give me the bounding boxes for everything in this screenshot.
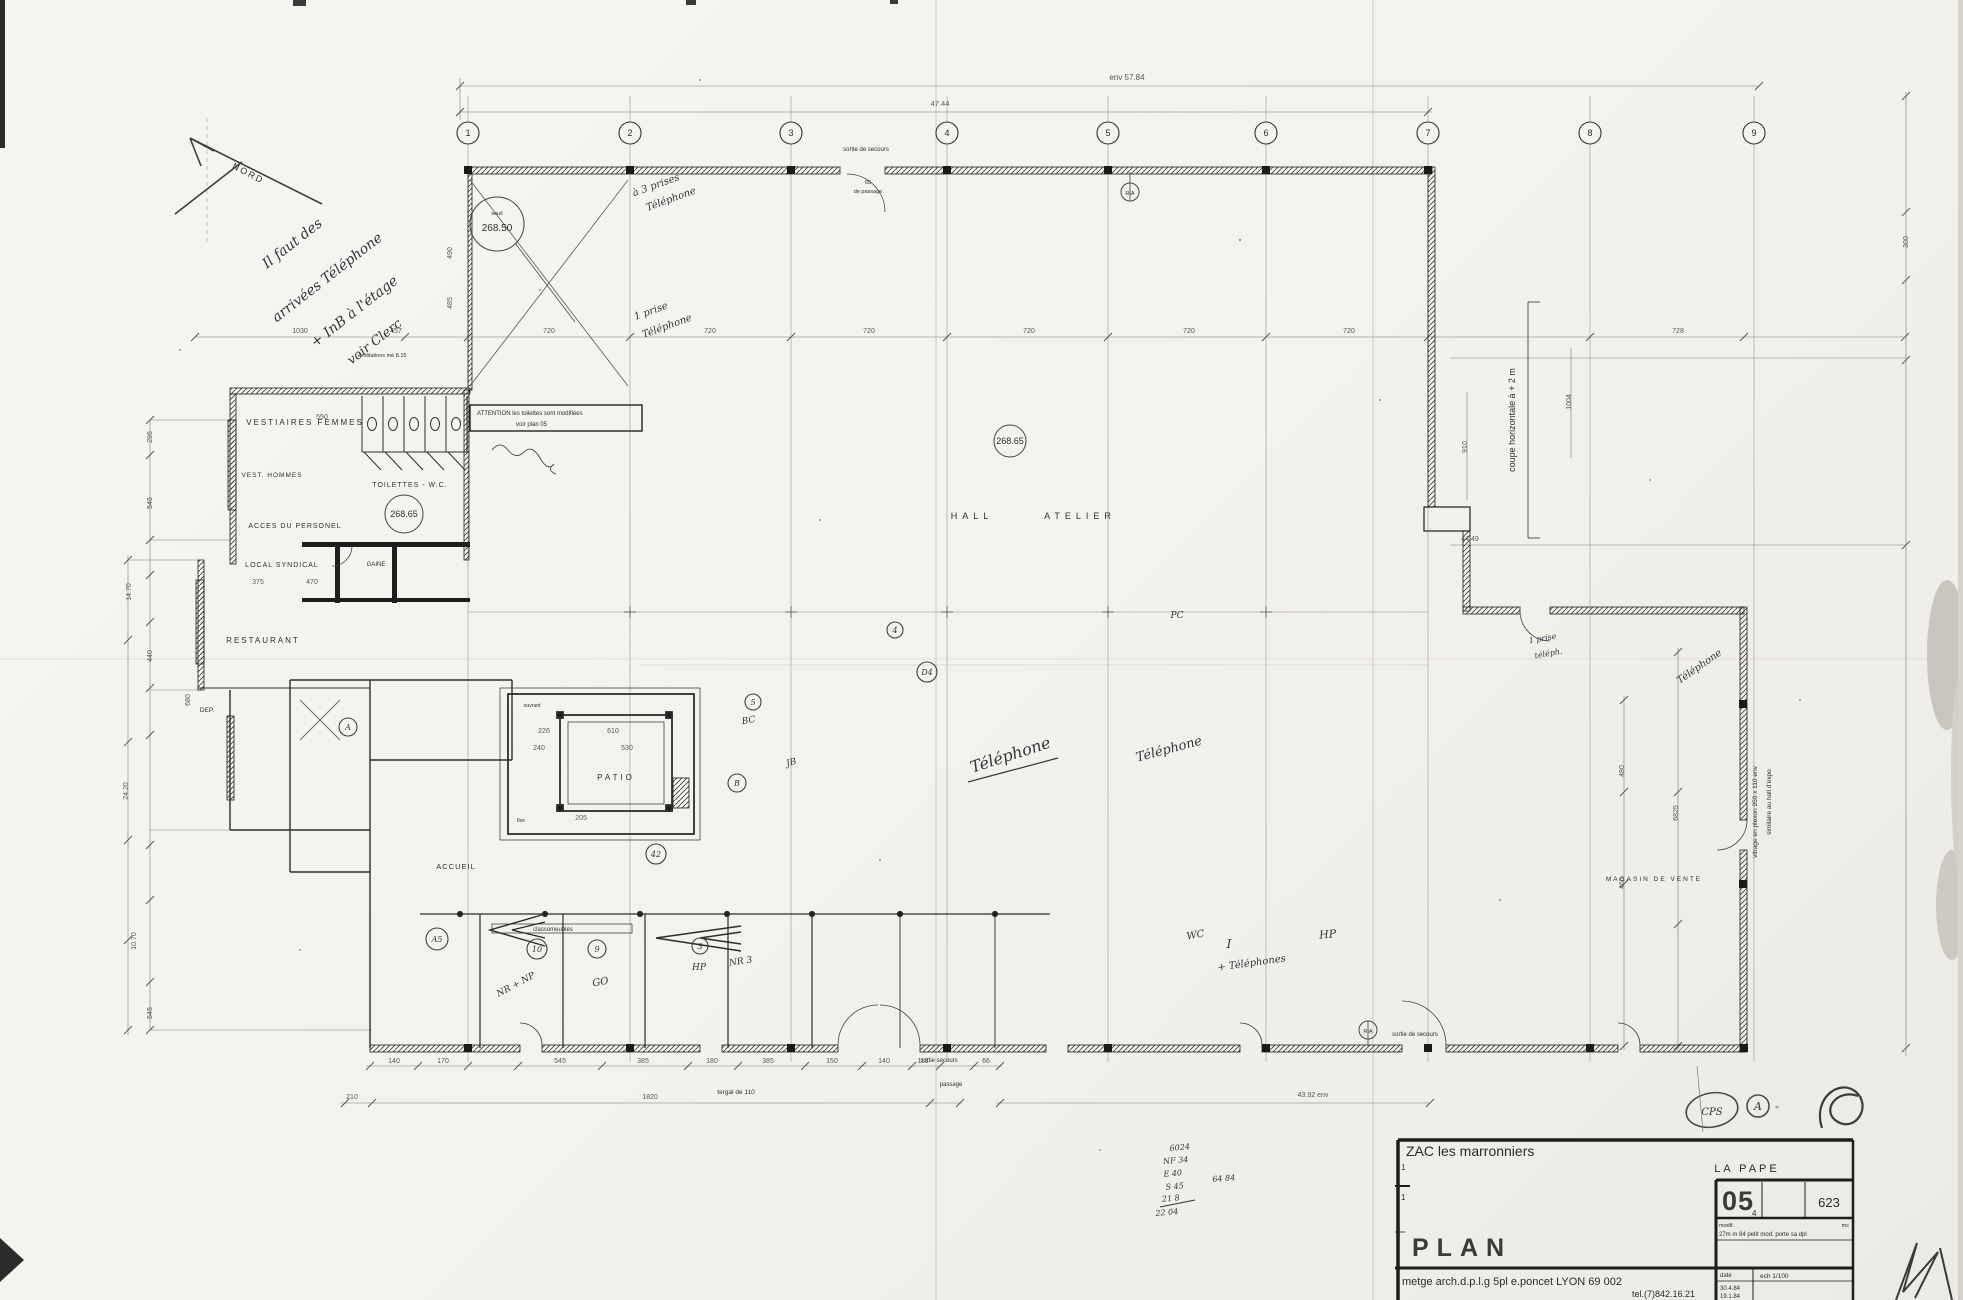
dimension-label: 485 <box>447 297 454 309</box>
modif-right: mc <box>1842 1223 1850 1229</box>
sheet-sub-number: 4 <box>1752 1209 1757 1218</box>
room-label: LOCAL SYNDICAL <box>245 562 319 569</box>
grid1-wall <box>468 174 472 390</box>
title-block: ZAC les marronniers 1 1 LA PAPE 05 4 623… <box>1395 1066 1952 1300</box>
stamp-cps-label: CPS <box>1701 1107 1722 1118</box>
dimension-label: 1004 <box>1566 394 1573 410</box>
handwritten-annotation: PC <box>1170 611 1184 621</box>
north-label: NORD <box>231 161 266 186</box>
circled-mark-label: A5 <box>431 935 443 944</box>
attention-line-1: ATTENTION les toilettes sont modifiées <box>477 411 583 417</box>
dimension-label: 720 <box>704 328 716 335</box>
handwritten-annotation: NR + NP <box>494 971 537 1000</box>
room-label: sortie de secours <box>1392 1032 1438 1038</box>
dimension-label: 470 <box>306 579 318 586</box>
room-label: similaire au hall d'expo <box>1766 769 1773 835</box>
handwritten-annotation: téléph. <box>1534 647 1563 661</box>
handwritten-annotation: + Téléphones <box>1217 953 1287 973</box>
north-arrow: NORD <box>175 118 322 244</box>
room-label: VEST. HOMMES <box>241 472 302 479</box>
scan-corner-mark <box>0 1238 24 1282</box>
room-label: ATELIER <box>1044 511 1116 521</box>
grid-bubble-number: 7 <box>1425 128 1430 138</box>
top-wall <box>468 167 840 174</box>
circled-mark-label: 4 <box>891 626 897 635</box>
dimension-label: 610 <box>607 728 619 735</box>
handwritten-annotation: GO <box>592 976 610 990</box>
right-wall <box>1740 607 1747 820</box>
room-labels-layer: VESTIAIRES FEMMESVEST. HOMMESTOILETTES -… <box>200 147 1773 1096</box>
dimension-label: 728 <box>1672 328 1684 335</box>
circled-mark-label: B <box>733 779 740 788</box>
margin-signature <box>1896 1243 1952 1300</box>
margin-mark: 1 <box>1401 1163 1406 1172</box>
room-label: passage <box>940 1082 963 1088</box>
dimension-label: 720 <box>1343 328 1355 335</box>
grid-bubble-number: 6 <box>1263 128 1268 138</box>
dimension-labels-layer: env 57.8447.4410304577207207207207207207… <box>123 73 1910 1101</box>
room-label: DEP. <box>200 707 215 714</box>
grid-bubble-number: 3 <box>788 128 793 138</box>
signature-scribble <box>1820 1087 1863 1128</box>
room-label: PATIO <box>597 773 635 782</box>
dimension-label: 545 <box>554 1058 566 1065</box>
handwritten-annotation: HP <box>1318 927 1338 942</box>
wing-wall <box>1463 607 1520 614</box>
dimension-label: 1820 <box>642 1094 658 1101</box>
dimension-label: 44.49 <box>1461 536 1479 543</box>
circled-mark-label: 5 <box>750 698 755 707</box>
dimension-label: 720 <box>863 328 875 335</box>
structural-grid-lines <box>468 96 1754 1062</box>
circled-mark-label: 268.50 <box>482 223 513 234</box>
handwritten-annotation: BC <box>740 715 756 727</box>
grid-bubble-number: 9 <box>1751 128 1756 138</box>
room-label: vitrage en plexon 950 x 110 env <box>1752 765 1759 857</box>
room-label: coupe horizontale à + 2 m <box>1507 368 1517 472</box>
handwritten-annotation: NF 34 <box>1162 1155 1189 1166</box>
dimension-label: 240 <box>533 745 545 752</box>
handwritten-annotation: voir Clerc <box>345 316 406 368</box>
handwritten-annotation: 1 prise <box>633 300 670 322</box>
dimension-label: 6825 <box>1673 805 1680 821</box>
dimension-label: 385 <box>762 1058 774 1065</box>
date-value-2: 19.1.84 <box>1720 1294 1741 1300</box>
dimension-label: 720 <box>543 328 555 335</box>
annex-top-wall <box>230 388 470 394</box>
gaine-walls <box>302 542 470 603</box>
room-label: ACCES DU PERSONEL <box>248 523 341 530</box>
approval-stamp: CPS A - <box>1683 1066 1862 1132</box>
scale-label: ech 1/100 <box>1760 1273 1789 1280</box>
handwriting-strokes <box>968 758 1195 1207</box>
dimension-label: 24.20 <box>123 782 130 800</box>
patio <box>500 688 700 840</box>
dimension-label: 43.92 env <box>1298 1092 1329 1099</box>
dimension-label: 375 <box>252 579 264 586</box>
handwritten-annotation: Il faut des <box>259 216 326 273</box>
circled-mark-label: 42 <box>650 850 661 859</box>
circled-mark-label: A <box>344 723 351 732</box>
coupe-bracket <box>1528 302 1540 538</box>
handwritten-annotation: NR 3 <box>728 955 754 968</box>
grid-bubble-number: 1 <box>465 128 470 138</box>
circled-marks-layer: seuil268.50268.65268.65RIARIAAB45D4A5109… <box>339 183 1377 1039</box>
date-label: date <box>1720 1273 1732 1279</box>
circled-mark-label: 3 <box>697 942 702 951</box>
handwritten-scribble <box>492 445 556 474</box>
room-label: GAINE <box>367 562 386 568</box>
dimension-label: 550 <box>316 414 328 421</box>
dimension-label: 300 <box>1903 236 1910 248</box>
dimension-label: 180 <box>706 1058 718 1065</box>
bottom-wall <box>370 1045 520 1052</box>
dimension-label: 720 <box>1183 328 1195 335</box>
handwritten-annotation: 21 8 <box>1161 1193 1181 1204</box>
place-label: LA PAPE <box>1714 1163 1779 1175</box>
dimension-label: 295 <box>147 431 154 443</box>
patio-door-wall <box>673 778 689 808</box>
dimension-label: 118 <box>917 1058 928 1065</box>
dimension-label: 480 <box>1619 765 1626 777</box>
handwritten-annotation: JB <box>783 757 798 770</box>
toilet-stalls <box>362 396 468 470</box>
room-label: RESTAURANT <box>226 636 300 645</box>
margin-mark: 1 <box>1401 1193 1406 1202</box>
room-label: tergal de 110 <box>717 1089 755 1096</box>
dimension-label: 205 <box>575 815 587 822</box>
dimension-label: 460 <box>1619 877 1626 889</box>
sheet-number: 05 <box>1722 1186 1754 1216</box>
handwritten-labels-layer: Il faut desarrivées Téléphone+ InB à l'é… <box>259 172 1724 1218</box>
handwritten-annotation: 6024 <box>1169 1142 1190 1153</box>
dimension-label: 910 <box>1462 441 1469 453</box>
dimension-label: 140 <box>388 1058 400 1065</box>
grid-bubble-number: 4 <box>944 128 949 138</box>
dimension-label: 14.70 <box>126 583 133 601</box>
dimension-label: env 57.84 <box>1109 73 1145 82</box>
handwritten-annotation: E 40 <box>1162 1168 1182 1179</box>
dimension-label: 66 <box>982 1058 990 1065</box>
circled-mark-label: 9 <box>594 945 599 954</box>
room-label: 65 <box>865 180 871 186</box>
room-label: TOILETTES - W.C. <box>372 482 447 489</box>
dimension-label: 680 <box>185 694 192 706</box>
walls-layer <box>196 166 1748 1052</box>
dimension-label: 10.70 <box>131 932 138 950</box>
grid-bubble-number: 2 <box>627 128 632 138</box>
dimension-label: 530 <box>621 745 633 752</box>
handwritten-annotation: 64 84 <box>1212 1173 1236 1184</box>
dimension-label: 545 <box>147 1007 154 1019</box>
stamp-dash: - <box>1775 1100 1779 1113</box>
dimension-label: 545 <box>147 497 154 509</box>
dimension-label: 385 <box>637 1058 649 1065</box>
dimension-label: 170 <box>437 1058 449 1065</box>
scan-edge-mark <box>0 0 5 148</box>
wall-jog-box <box>1424 507 1470 531</box>
room-label: VESTIAIRES FEMMES <box>246 418 364 427</box>
handwritten-annotation: S 45 <box>1165 1181 1184 1192</box>
scan-speckles <box>179 79 1801 1151</box>
dimension-label: 440 <box>147 650 154 662</box>
phone-line: tel.(7)842.16.21 <box>1632 1289 1695 1299</box>
room-label: fixe <box>517 818 525 824</box>
attention-line-2: voir plan 05 <box>516 422 548 428</box>
dimension-label: 150 <box>826 1058 838 1065</box>
modif-label: modif. <box>1719 1223 1734 1229</box>
scan-artifacts <box>0 0 1963 1300</box>
stamp-a-label: A <box>1753 1100 1762 1113</box>
grid-bubble-number: 5 <box>1105 128 1110 138</box>
room-label: classomeubles <box>533 927 573 933</box>
handwritten-annotation: I <box>1226 937 1232 951</box>
grid-bubble-number: 8 <box>1587 128 1592 138</box>
dimension-label: 490 <box>447 247 454 259</box>
circled-mark-sublabel: seuil <box>491 211 502 217</box>
project-title: ZAC les marronniers <box>1406 1143 1534 1159</box>
circled-mark-label: 268.65 <box>390 509 418 519</box>
handwritten-annotation: HP <box>691 963 707 973</box>
room-label: ACCUEIL <box>436 862 476 871</box>
room-label: sortie de secours <box>843 147 889 153</box>
handwritten-annotation: 1 prise <box>1528 632 1557 646</box>
dimension-label: 140 <box>878 1058 890 1065</box>
modif-text: 27m m 84 petit mod. porte sa dpl <box>1719 1232 1807 1238</box>
scanned-floor-plan-sheet: NORD ATTENTION les toilettes sont modifi… <box>0 0 1963 1300</box>
grid-bubbles-layer: 123456789 <box>457 122 1765 144</box>
dimension-label: 210 <box>346 1094 358 1101</box>
circled-mark-label: RIA <box>1125 191 1135 197</box>
circled-mark-label: RIA <box>1363 1029 1373 1035</box>
room-label: HALL <box>951 511 994 521</box>
dimension-label: 1030 <box>292 328 308 335</box>
room-label: ouvrant <box>524 703 541 709</box>
handwritten-annotation: WC <box>1186 929 1206 943</box>
drawing-type: PLAN <box>1412 1234 1512 1262</box>
circled-mark-label: 10 <box>532 945 542 954</box>
circled-mark-label: D4 <box>920 668 933 677</box>
dimension-label: 47.44 <box>931 99 950 108</box>
handwritten-annotation: Téléphone <box>1675 647 1724 686</box>
dimension-label: 720 <box>1023 328 1035 335</box>
floor-plan-drawing: NORD ATTENTION les toilettes sont modifi… <box>0 0 1963 1300</box>
date-value-1: 30.4.84 <box>1720 1286 1741 1292</box>
attention-note: ATTENTION les toilettes sont modifiées v… <box>470 405 642 474</box>
handwritten-annotation: Téléphone <box>1134 734 1204 766</box>
circled-mark-label: 268.65 <box>996 436 1024 446</box>
architect-line: metge arch.d.p.l.g 5pl e.poncet LYON 69 … <box>1402 1276 1622 1288</box>
dimension-lines <box>124 78 1910 1107</box>
dimension-label: 226 <box>538 728 550 735</box>
handwritten-annotation: 22 04 <box>1154 1207 1179 1218</box>
room-label: de passage <box>854 189 882 195</box>
reference-number: 623 <box>1818 1195 1840 1210</box>
right-upper-wall <box>1428 167 1435 507</box>
